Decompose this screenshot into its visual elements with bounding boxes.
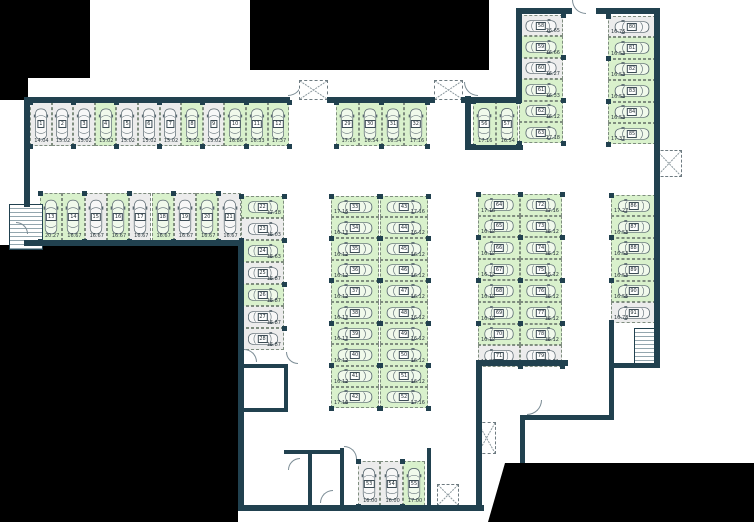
stall-length-label: 15.02 <box>164 138 178 144</box>
stall-length-label: 16.87 <box>267 342 281 348</box>
stall-length-label: 16.12 <box>545 316 559 322</box>
parking-stall-29[interactable]: 2917.16 <box>336 102 359 146</box>
stall-length-label: 16.12 <box>545 294 559 300</box>
parking-stall-55[interactable]: 5517.00 <box>403 461 425 506</box>
stall-length-label: 16.12 <box>545 251 559 257</box>
stall-number: 69 <box>494 309 504 317</box>
parking-stall-42[interactable]: 4217.16 <box>331 387 379 408</box>
parking-stall-3[interactable]: 315.02 <box>73 102 95 146</box>
stall-length-label: 16.33 <box>546 93 560 99</box>
parking-stall-11[interactable]: 1116.33 <box>246 102 268 146</box>
column-dot <box>378 321 383 326</box>
parking-stall-90[interactable]: 9016.55 <box>611 281 656 302</box>
parking-stall-31[interactable]: 3116.54 <box>382 102 405 146</box>
parking-stall-48[interactable]: 4816.12 <box>380 302 428 323</box>
column-dot <box>606 142 611 147</box>
wall-segment <box>242 364 286 368</box>
stall-number: 53 <box>364 480 374 488</box>
stall-length-label: 17.27 <box>614 208 628 214</box>
stall-length-label: 16.53 <box>614 230 628 236</box>
column-dot <box>561 141 566 146</box>
stall-length-label: 17.16 <box>545 208 559 214</box>
stall-number: 41 <box>350 372 360 380</box>
stall-length-label: 16.12 <box>411 230 425 236</box>
parking-stall-87[interactable]: 8716.53 <box>611 216 656 237</box>
parking-stall-37[interactable]: 3716.12 <box>331 281 379 302</box>
column-dot <box>426 236 431 241</box>
stall-length-label: 16.63 <box>267 254 281 260</box>
stall-number: 61 <box>536 86 546 94</box>
parking-stall-25[interactable]: 2516.87 <box>241 262 284 284</box>
stall-number: 11 <box>252 120 262 128</box>
wall-segment <box>609 363 614 420</box>
column-dot <box>378 194 383 199</box>
stall-number: 7 <box>167 120 174 128</box>
stall-length-label: 16.12 <box>546 114 560 120</box>
stall-number: 68 <box>494 287 504 295</box>
opening-marker-icon <box>434 80 463 100</box>
column-dot <box>560 364 565 369</box>
parking-stall-12[interactable]: 1217.37 <box>268 102 290 146</box>
column-dot <box>28 144 33 149</box>
column-dot <box>426 321 431 326</box>
parking-stall-80[interactable]: 8016.76 <box>608 16 656 37</box>
stall-number: 3 <box>80 120 87 128</box>
stall-number: 15 <box>91 213 101 221</box>
parking-stall-77[interactable]: 7716.12 <box>520 302 562 324</box>
parking-stall-64[interactable]: 6417.16 <box>478 194 520 216</box>
column-dot <box>82 239 87 244</box>
stall-number: 54 <box>386 480 396 488</box>
column-dot <box>282 326 287 331</box>
parking-stall-34[interactable]: 3416.12 <box>331 217 379 238</box>
column-dot <box>378 406 383 411</box>
stall-length-label: 16.12 <box>334 294 348 300</box>
column-dot <box>329 194 334 199</box>
stall-length-label: 16.12 <box>481 272 495 278</box>
parking-stall-35[interactable]: 3516.12 <box>331 238 379 259</box>
column-dot <box>518 278 523 283</box>
parking-stall-59[interactable]: 5916.66 <box>519 36 563 57</box>
column-dot <box>654 56 659 61</box>
column-dot <box>71 100 76 105</box>
door-arc <box>288 458 300 470</box>
stall-number: 20 <box>202 213 212 221</box>
stall-number: 44 <box>399 224 409 232</box>
parking-stall-62[interactable]: 6216.12 <box>519 101 563 122</box>
stall-number: 82 <box>627 65 637 73</box>
column-dot <box>200 100 205 105</box>
column-dot <box>654 14 659 19</box>
stall-length-label: 20.27 <box>45 233 59 239</box>
wall-segment <box>340 448 344 508</box>
wall-segment <box>24 240 242 246</box>
column-dot <box>425 100 430 105</box>
parking-stall-36[interactable]: 3616.12 <box>331 260 379 281</box>
column-dot <box>114 144 119 149</box>
parking-stall-91[interactable]: 9116.78 <box>611 302 656 323</box>
stall-number: 16 <box>113 213 123 221</box>
parking-stall-24[interactable]: 2416.63 <box>241 240 284 262</box>
column-dot <box>356 459 361 464</box>
column-dot <box>157 144 162 149</box>
column-dot <box>654 321 659 326</box>
stall-number: 47 <box>399 287 409 295</box>
column-dot <box>476 278 481 283</box>
stall-length-label: 16.12 <box>411 273 425 279</box>
stall-number: 57 <box>502 120 512 128</box>
void-area <box>0 245 238 522</box>
column-dot <box>425 144 430 149</box>
door-arc <box>286 352 298 364</box>
column-dot <box>476 321 481 326</box>
parking-stall-54[interactable]: 5416.00 <box>380 461 402 506</box>
column-dot <box>609 278 614 283</box>
parking-stall-17[interactable]: 1716.67 <box>129 193 151 241</box>
column-dot <box>329 406 334 411</box>
door-arc <box>244 349 257 362</box>
parking-stall-50[interactable]: 5016.12 <box>380 344 428 365</box>
stall-length-label: 17.16 <box>410 138 424 144</box>
parking-stall-74[interactable]: 7416.12 <box>520 237 562 259</box>
stall-length-label: 16.67 <box>156 233 170 239</box>
stall-number: 14 <box>68 213 78 221</box>
column-dot <box>476 235 481 240</box>
parking-stall-13[interactable]: 1320.27 <box>40 193 62 241</box>
parking-stall-15[interactable]: 1516.67 <box>85 193 107 241</box>
stall-length-label: 14.04 <box>34 138 48 144</box>
stall-length-label: 16.87 <box>267 320 281 326</box>
parking-stall-46[interactable]: 4616.12 <box>380 260 428 281</box>
column-dot <box>329 236 334 241</box>
stall-number: 21 <box>224 213 234 221</box>
column-dot <box>471 144 476 149</box>
stall-length-label: 17.16 <box>481 208 495 214</box>
stall-number: 45 <box>399 245 409 253</box>
stall-length-label: 15.02 <box>207 138 221 144</box>
stall-length-label: 16.12 <box>481 294 495 300</box>
column-dot <box>379 144 384 149</box>
stall-number: 88 <box>628 244 638 252</box>
door-arc <box>464 82 478 96</box>
column-dot <box>379 100 384 105</box>
stall-number: 50 <box>399 351 409 359</box>
stall-number: 89 <box>628 266 638 274</box>
wall-segment <box>654 8 660 368</box>
stall-length-label: 16.12 <box>334 379 348 385</box>
stall-length-label: 16.12 <box>334 336 348 342</box>
stall-number: 81 <box>627 44 637 52</box>
stall-length-label: 16.54 <box>501 138 515 144</box>
stall-number: 35 <box>350 245 360 253</box>
column-dot <box>378 236 383 241</box>
stall-length-label: 17.16 <box>334 400 348 406</box>
parking-stall-5[interactable]: 515.02 <box>116 102 138 146</box>
stall-number: 55 <box>409 480 419 488</box>
column-dot <box>518 364 523 369</box>
stall-length-label: 16.53 <box>611 51 625 57</box>
stall-number: 91 <box>628 309 638 317</box>
stall-number: 18 <box>157 213 167 221</box>
parking-stall-72[interactable]: 7217.16 <box>520 194 562 216</box>
stall-number: 39 <box>350 330 360 338</box>
stall-length-label: 16.12 <box>481 337 495 343</box>
stall-length-label: 16.12 <box>334 358 348 364</box>
column-dot <box>606 14 611 19</box>
stall-length-label: 16.53 <box>611 115 625 121</box>
parking-stall-76[interactable]: 7616.12 <box>520 280 562 302</box>
stall-number: 64 <box>494 201 504 209</box>
column-dot <box>239 238 244 243</box>
stall-number: 87 <box>628 223 638 231</box>
column-dot <box>560 321 565 326</box>
wall-segment <box>476 360 482 511</box>
parking-stall-2[interactable]: 215.02 <box>52 102 74 146</box>
stall-number: 33 <box>350 203 360 211</box>
stall-length-label: 15.02 <box>142 138 156 144</box>
parking-stall-45[interactable]: 4516.12 <box>380 238 428 259</box>
stall-number: 52 <box>399 393 409 401</box>
stall-number: 31 <box>388 120 398 128</box>
stall-number: 51 <box>399 372 409 380</box>
column-dot <box>287 100 292 105</box>
stall-length-label: 16.76 <box>611 29 625 35</box>
parking-stall-18[interactable]: 1816.67 <box>152 193 174 241</box>
stall-length-label: 15.02 <box>185 138 199 144</box>
column-dot <box>654 235 659 240</box>
stall-length-label: 16.87 <box>267 276 281 282</box>
door-arc <box>320 490 333 503</box>
parking-stall-52[interactable]: 5217.16 <box>380 387 428 408</box>
column-dot <box>426 194 431 199</box>
parking-stall-78[interactable]: 7816.12 <box>520 324 562 346</box>
stall-length-label: 17.16 <box>411 209 425 215</box>
parking-stall-43[interactable]: 4317.16 <box>380 196 428 217</box>
door-arc <box>572 0 586 14</box>
parking-stall-28[interactable]: 2816.87 <box>241 328 284 350</box>
column-dot <box>171 191 176 196</box>
parking-stall-57[interactable]: 5716.54 <box>496 101 519 146</box>
column-dot <box>334 144 339 149</box>
column-dot <box>560 235 565 240</box>
stall-length-label: 16.78 <box>614 315 628 321</box>
wall-segment <box>465 96 471 150</box>
parking-stall-40[interactable]: 4016.12 <box>331 344 379 365</box>
stall-number: 46 <box>399 266 409 274</box>
parking-stall-89[interactable]: 8916.53 <box>611 259 656 280</box>
stall-number: 71 <box>494 352 504 360</box>
stall-number: 63 <box>536 129 546 137</box>
parking-stall-58[interactable]: 5816.65 <box>519 15 563 36</box>
parking-stall-49[interactable]: 4916.12 <box>380 323 428 344</box>
column-dot <box>114 100 119 105</box>
stall-number: 60 <box>536 64 546 72</box>
stall-length-label: 16.00 <box>385 498 399 504</box>
parking-stall-82[interactable]: 8216.53 <box>608 59 656 80</box>
column-dot <box>38 239 43 244</box>
parking-stall-67[interactable]: 6716.12 <box>478 259 520 281</box>
stall-number: 6 <box>145 120 152 128</box>
stall-number: 42 <box>350 393 360 401</box>
stall-length-label: 16.12 <box>334 273 348 279</box>
column-dot <box>200 144 205 149</box>
column-dot <box>654 278 659 283</box>
parking-stall-8[interactable]: 815.02 <box>181 102 203 146</box>
parking-stall-27[interactable]: 2716.87 <box>241 306 284 328</box>
stall-number: 1 <box>37 120 44 128</box>
column-dot <box>654 193 659 198</box>
stall-number: 19 <box>180 213 190 221</box>
parking-stall-38[interactable]: 3816.12 <box>331 302 379 323</box>
column-dot <box>606 56 611 61</box>
stall-number: 59 <box>536 43 546 51</box>
stall-length-label: 16.65 <box>546 28 560 34</box>
column-dot <box>400 459 405 464</box>
parking-stall-86[interactable]: 8617.27 <box>611 195 656 216</box>
column-dot <box>561 55 566 60</box>
parking-stall-14[interactable]: 1416.67 <box>62 193 84 241</box>
parking-stall-70[interactable]: 7016.12 <box>478 324 520 346</box>
parking-floor-plan: 114.04215.02315.02415.02515.02615.02715.… <box>0 0 754 522</box>
column-dot <box>609 321 614 326</box>
column-dot <box>561 13 566 18</box>
opening-marker-icon <box>437 484 459 506</box>
column-dot <box>157 100 162 105</box>
parking-stall-84[interactable]: 8416.53 <box>608 102 656 123</box>
stall-number: 36 <box>350 266 360 274</box>
stall-length-label: 16.67 <box>201 233 215 239</box>
column-dot <box>28 100 33 105</box>
stall-number: 58 <box>536 22 546 30</box>
column-dot <box>329 321 334 326</box>
stall-length-label: 16.87 <box>267 298 281 304</box>
parking-stall-16[interactable]: 1616.67 <box>107 193 129 241</box>
parking-stall-1[interactable]: 114.04 <box>30 102 52 146</box>
parking-stall-10[interactable]: 1016.86 <box>224 102 246 146</box>
column-dot <box>334 100 339 105</box>
stall-length-label: 16.27 <box>546 71 560 77</box>
stall-number: 86 <box>628 202 638 210</box>
parking-stall-63[interactable]: 6317.18 <box>519 122 563 143</box>
stall-length-label: 16.67 <box>179 233 193 239</box>
column-dot <box>239 194 244 199</box>
stall-length-label: 17.16 <box>341 138 355 144</box>
column-dot <box>476 364 481 369</box>
column-dot <box>518 321 523 326</box>
parking-stall-26[interactable]: 2616.87 <box>241 284 284 306</box>
parking-stall-4[interactable]: 415.02 <box>95 102 117 146</box>
wall-segment <box>609 363 660 368</box>
stall-number: 32 <box>411 120 421 128</box>
parking-stall-51[interactable]: 5116.12 <box>380 366 428 387</box>
parking-stall-39[interactable]: 3916.12 <box>331 323 379 344</box>
parking-stall-73[interactable]: 7316.12 <box>520 216 562 238</box>
column-dot <box>560 278 565 283</box>
stall-length-label: 16.67 <box>90 233 104 239</box>
column-dot <box>517 141 522 146</box>
parking-stall-85[interactable]: 8517.37 <box>608 123 656 144</box>
stall-number: 4 <box>102 120 109 128</box>
column-dot <box>378 363 383 368</box>
stall-number: 8 <box>188 120 195 128</box>
parking-stall-69[interactable]: 6916.12 <box>478 302 520 324</box>
parking-stall-75[interactable]: 7516.12 <box>520 259 562 281</box>
stall-number: 66 <box>494 244 504 252</box>
stall-number: 62 <box>536 107 546 115</box>
column-dot <box>329 278 334 283</box>
wall-segment <box>308 450 312 508</box>
stall-number: 84 <box>627 108 637 116</box>
wall-segment <box>520 415 525 463</box>
stall-length-label: 15.02 <box>77 138 91 144</box>
stall-number: 40 <box>350 351 360 359</box>
stall-length-label: 16.12 <box>481 316 495 322</box>
parking-stall-22[interactable]: 2217.18 <box>241 196 284 218</box>
parking-stall-66[interactable]: 6616.12 <box>478 237 520 259</box>
parking-stall-56[interactable]: 5617.16 <box>473 101 496 146</box>
parking-stall-88[interactable]: 8816.53 <box>611 238 656 259</box>
column-dot <box>282 282 287 287</box>
parking-stall-41[interactable]: 4116.12 <box>331 366 379 387</box>
stall-number: 2 <box>59 120 66 128</box>
parking-stall-61[interactable]: 6116.33 <box>519 79 563 100</box>
parking-stall-68[interactable]: 6816.12 <box>478 280 520 302</box>
wall-segment <box>284 450 344 454</box>
stall-number: 13 <box>46 213 56 221</box>
stall-length-label: 16.53 <box>611 94 625 100</box>
stall-number: 34 <box>350 224 360 232</box>
parking-stall-60[interactable]: 6016.27 <box>519 58 563 79</box>
parking-stall-44[interactable]: 4416.12 <box>380 217 428 238</box>
parking-stall-20[interactable]: 2016.67 <box>196 193 218 241</box>
column-dot <box>518 192 523 197</box>
parking-stall-30[interactable]: 3016.54 <box>359 102 382 146</box>
stall-number: 67 <box>494 266 504 274</box>
stall-length-label: 16.00 <box>363 498 377 504</box>
parking-stall-23[interactable]: 2316.03 <box>241 218 284 240</box>
stall-length-label: 17.16 <box>478 138 492 144</box>
stall-number: 83 <box>627 87 637 95</box>
parking-stall-6[interactable]: 615.02 <box>138 102 160 146</box>
stall-length-label: 15.02 <box>99 138 113 144</box>
stall-number: 56 <box>479 120 489 128</box>
stall-length-label: 16.53 <box>611 72 625 78</box>
parking-stall-7[interactable]: 715.02 <box>160 102 182 146</box>
stall-length-label: 17.16 <box>411 400 425 406</box>
parking-stall-9[interactable]: 915.02 <box>203 102 225 146</box>
stall-length-label: 16.53 <box>614 251 628 257</box>
parking-stall-53[interactable]: 5316.00 <box>358 461 380 506</box>
stall-length-label: 16.12 <box>545 337 559 343</box>
column-dot <box>38 191 43 196</box>
parking-stall-65[interactable]: 6516.12 <box>478 216 520 238</box>
parking-stall-33[interactable]: 3317.16 <box>331 196 379 217</box>
column-dot <box>654 142 659 147</box>
stall-length-label: 16.12 <box>334 230 348 236</box>
stall-length-label: 16.12 <box>545 229 559 235</box>
parking-stall-21[interactable]: 2116.67 <box>218 193 240 241</box>
door-arc <box>344 446 357 459</box>
parking-stall-19[interactable]: 1916.67 <box>174 193 196 241</box>
parking-stall-83[interactable]: 8316.53 <box>608 80 656 101</box>
stall-length-label: 16.33 <box>250 138 264 144</box>
stall-number: 5 <box>124 120 131 128</box>
void-area <box>483 461 754 522</box>
parking-stall-32[interactable]: 3217.16 <box>404 102 427 146</box>
parking-stall-47[interactable]: 4716.12 <box>380 281 428 302</box>
parking-stall-81[interactable]: 8116.53 <box>608 37 656 58</box>
column-dot <box>471 99 476 104</box>
